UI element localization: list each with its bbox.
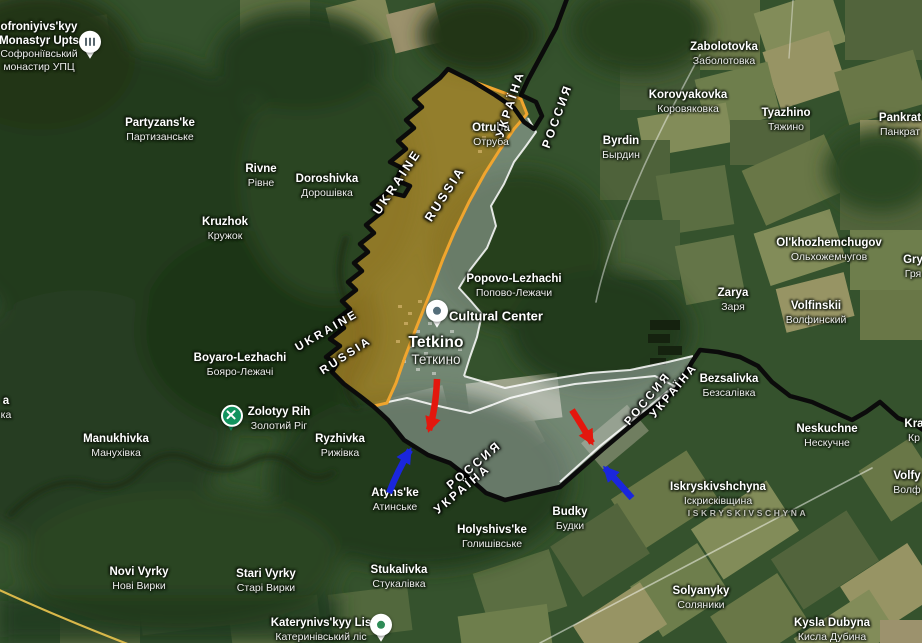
cultural-center-pin-icon[interactable]	[426, 300, 448, 322]
map-pins-layer	[0, 0, 922, 643]
katerynivskyy-lis-pin-icon[interactable]	[370, 614, 392, 636]
zolotyy-rih-pin-icon[interactable]	[220, 404, 242, 426]
monastery-pin-icon[interactable]	[79, 31, 101, 53]
satellite-map-canvas[interactable]: ofroniyivs'kyy Monastyr UptsСофроніївськ…	[0, 0, 922, 643]
